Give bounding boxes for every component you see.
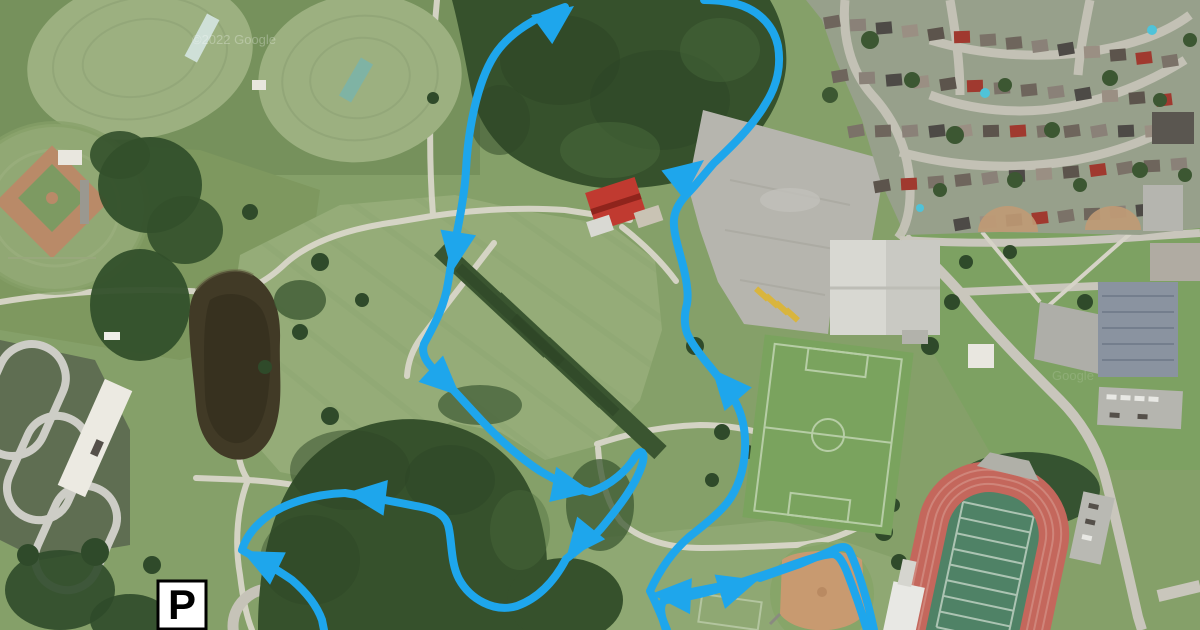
house-roof — [954, 31, 970, 44]
house-roof — [1005, 36, 1022, 50]
bleachers — [80, 180, 89, 224]
soccer-field — [742, 335, 913, 536]
house-roof — [1161, 54, 1179, 68]
house-roof — [902, 124, 919, 137]
house-roof — [927, 27, 945, 41]
house-roof — [1047, 85, 1065, 99]
white-outbuilding — [968, 344, 994, 368]
house-roof — [876, 21, 893, 34]
satellite-course-map: P ©2022 Google Google — [0, 0, 1200, 630]
house-roof — [1084, 46, 1101, 59]
sightscreen — [252, 80, 266, 90]
pitchers-mound — [46, 192, 58, 204]
house-roof — [939, 77, 957, 91]
arena-building — [830, 240, 940, 344]
house-roof — [875, 125, 892, 138]
parking-marker: P — [158, 581, 206, 629]
house-roof — [980, 33, 997, 46]
house-roof — [1118, 125, 1135, 138]
house-roof — [1063, 124, 1081, 138]
house-roof — [901, 24, 918, 38]
house-roof — [1129, 91, 1146, 104]
house-roof — [1036, 167, 1053, 180]
campus-parking — [1097, 387, 1183, 429]
house-roof — [1062, 165, 1079, 179]
shed — [58, 150, 82, 165]
house-roof — [901, 178, 918, 191]
pond-trees-west — [90, 249, 190, 361]
house-roof — [983, 125, 999, 138]
google-watermark-faint: Google — [1052, 368, 1094, 383]
house-roof — [1110, 48, 1127, 61]
path-connector — [196, 478, 248, 480]
house-roof — [1031, 39, 1049, 53]
house-roof — [1057, 209, 1075, 223]
parked-rv — [104, 332, 120, 340]
house-roof — [859, 72, 876, 85]
concrete-pad — [1143, 185, 1183, 231]
parking-marker-label: P — [168, 581, 196, 628]
pond-trees-east — [274, 280, 326, 320]
house-roof — [1102, 90, 1119, 103]
map-canvas: P ©2022 Google Google — [0, 0, 1200, 630]
house-roof — [1089, 163, 1107, 177]
house-roof — [850, 19, 867, 32]
house-roof — [1020, 83, 1037, 97]
house-roof — [1010, 124, 1027, 137]
house-roof — [928, 124, 945, 138]
google-watermark: ©2022 Google — [192, 32, 276, 47]
house-roof — [886, 73, 903, 86]
school-building-north — [1150, 243, 1200, 281]
house-roof — [981, 171, 999, 185]
dark-building — [1152, 112, 1194, 144]
house-roof — [954, 173, 971, 187]
house-roof — [1135, 51, 1152, 65]
